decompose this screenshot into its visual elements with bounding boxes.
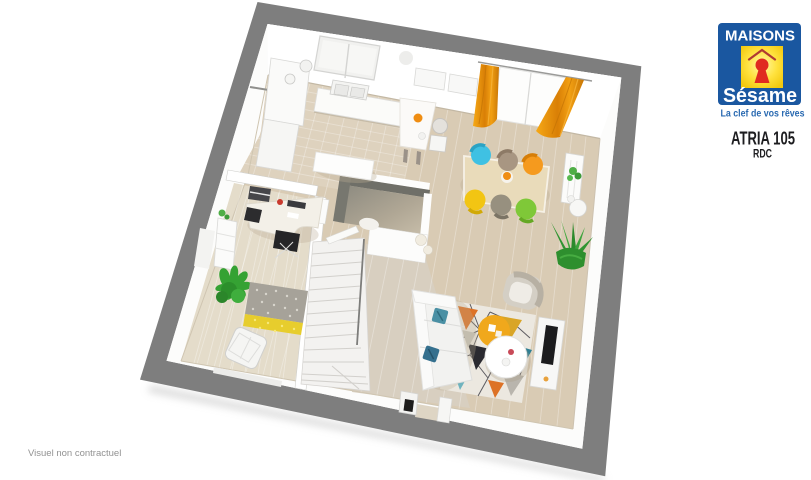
svg-text:MAISONS: MAISONS [725, 29, 795, 45]
svg-text:RDC: RDC [753, 147, 772, 161]
svg-text:ATRIA 105: ATRIA 105 [731, 129, 795, 149]
svg-text:La clef de vos rêves: La clef de vos rêves [721, 108, 805, 120]
svg-text:Sésame: Sésame [723, 85, 797, 107]
